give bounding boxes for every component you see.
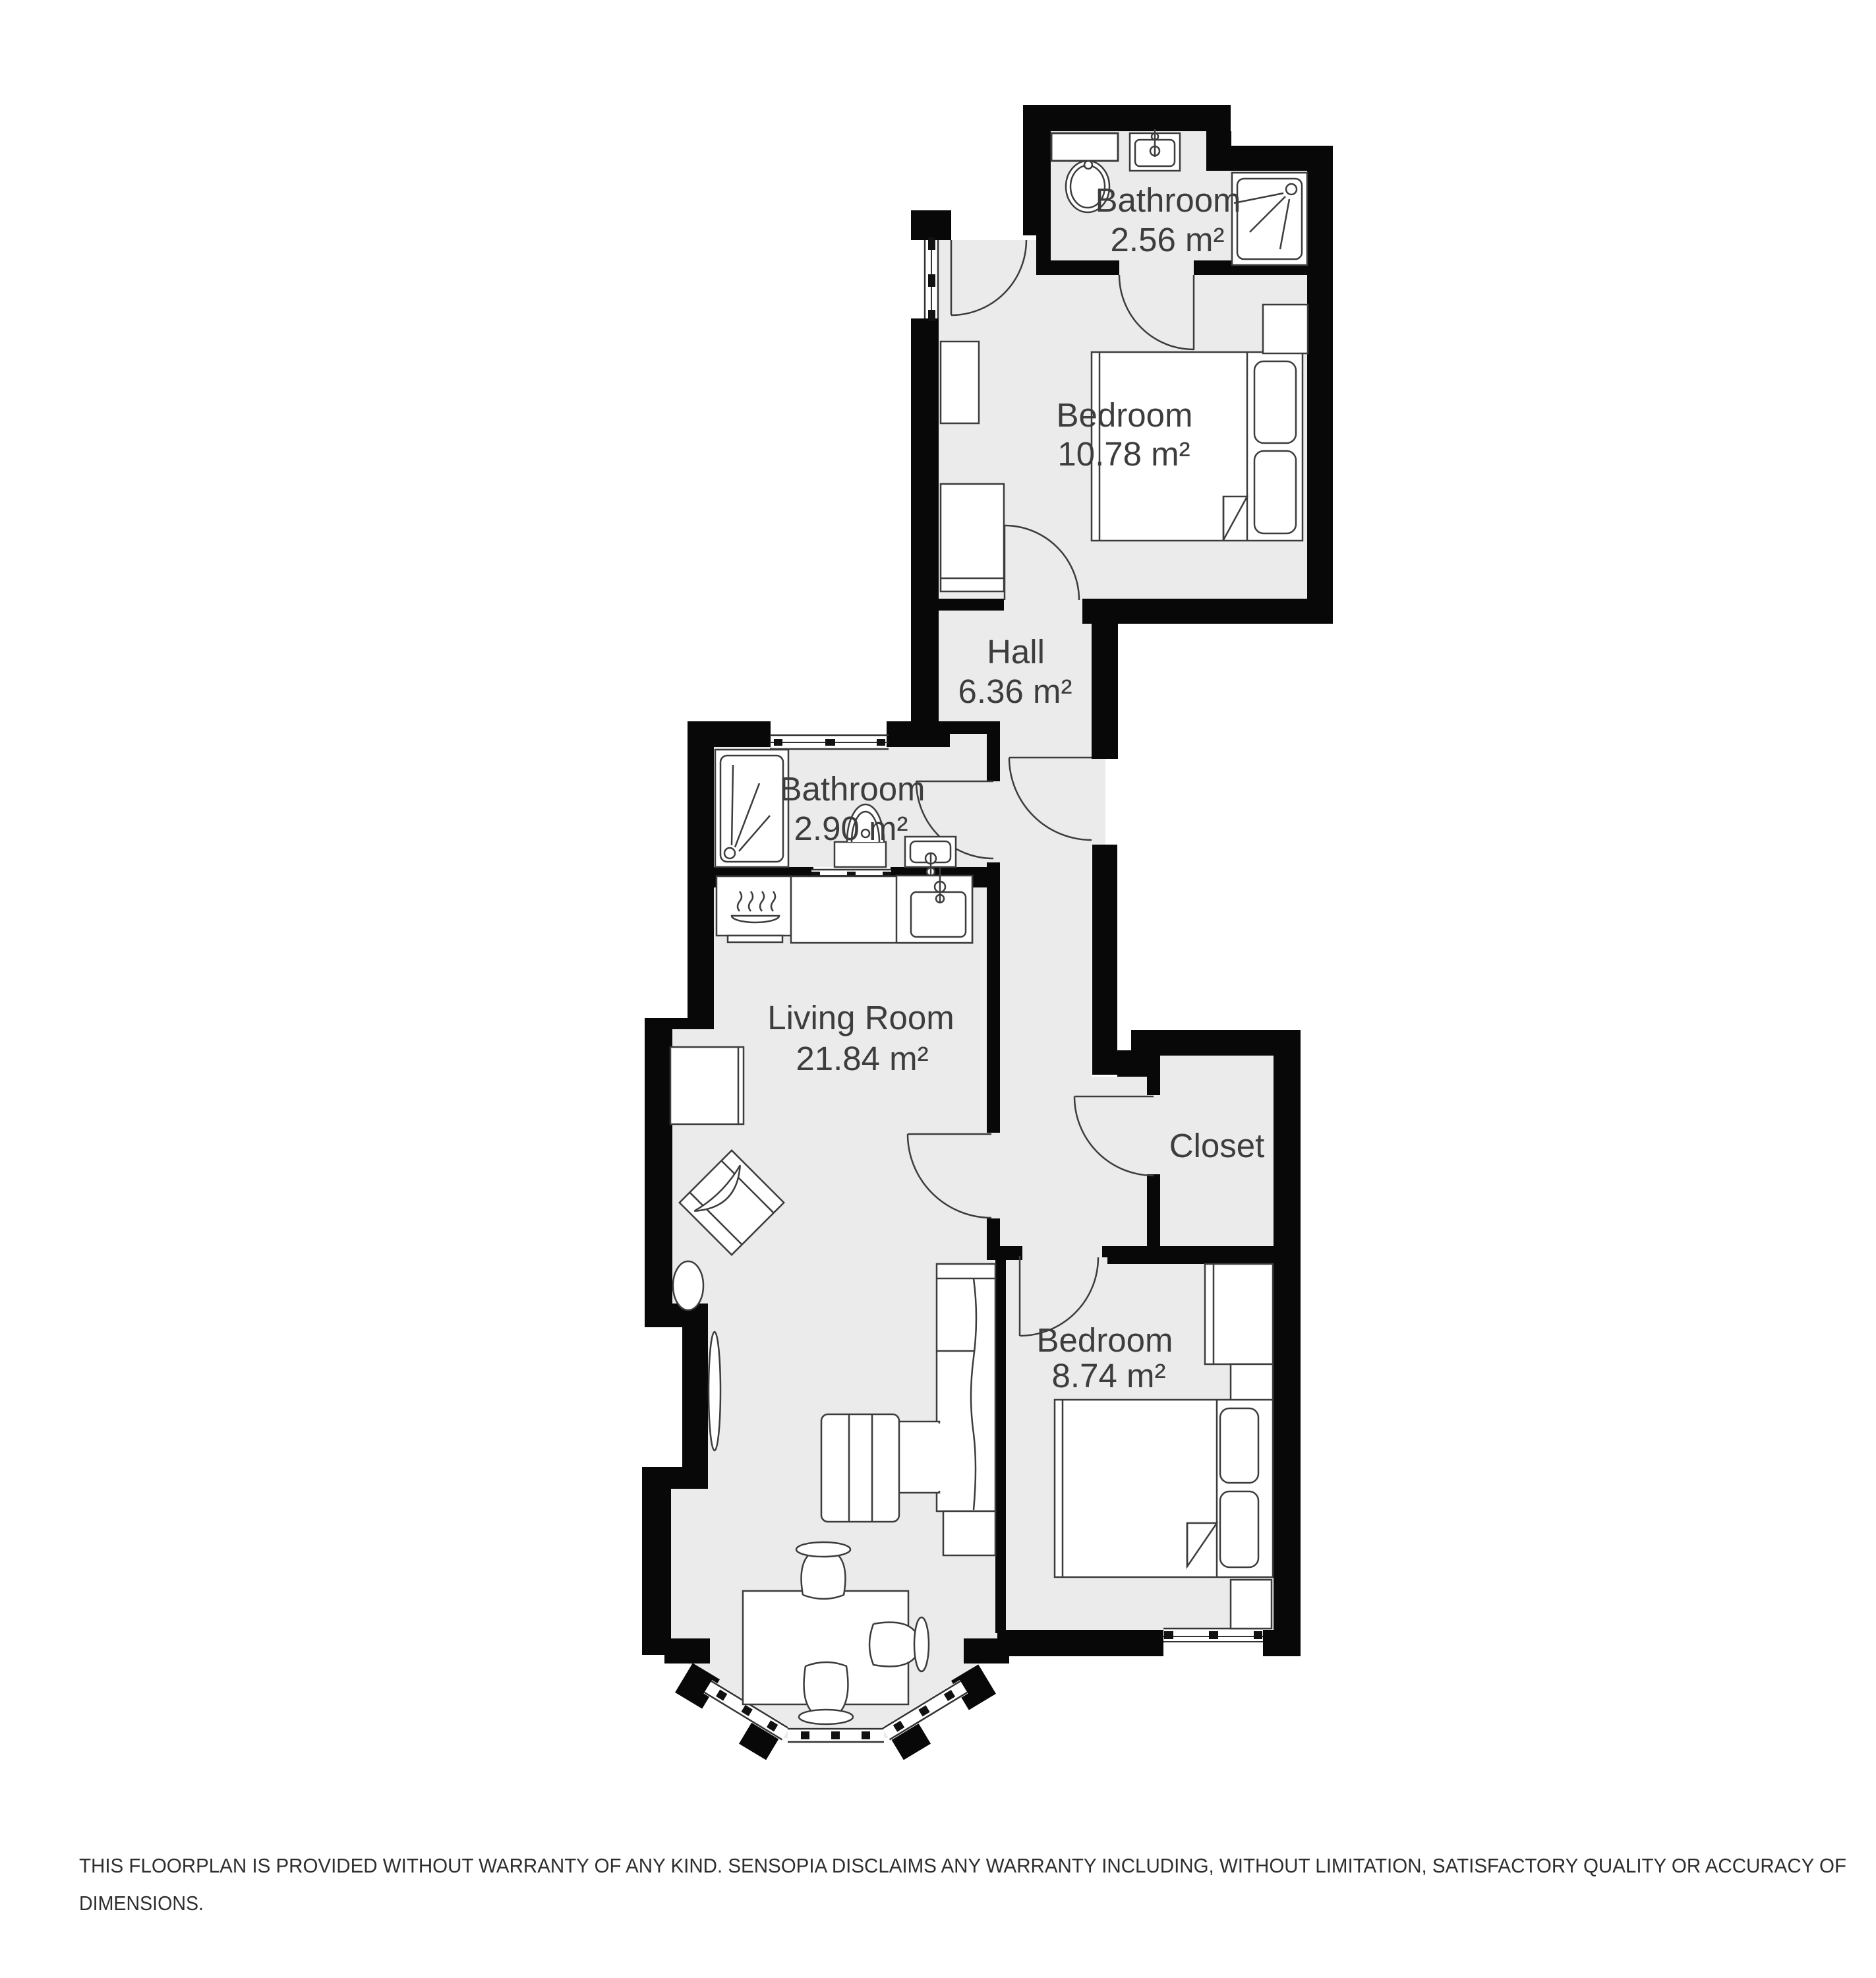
svg-text:Bedroom: Bedroom (1057, 396, 1193, 434)
svg-text:Bathroom: Bathroom (1095, 181, 1241, 219)
svg-text:Closet: Closet (1169, 1127, 1265, 1164)
svg-text:2.90 m²: 2.90 m² (794, 810, 908, 847)
svg-text:21.84 m²: 21.84 m² (796, 1040, 928, 1077)
svg-text:Bedroom: Bedroom (1037, 1321, 1173, 1359)
svg-text:2.56 m²: 2.56 m² (1111, 221, 1225, 258)
svg-text:THIS FLOORPLAN IS PROVIDED WIT: THIS FLOORPLAN IS PROVIDED WITHOUT WARRA… (79, 1854, 1846, 1877)
svg-text:Living Room: Living Room (767, 999, 954, 1036)
svg-text:Bathroom: Bathroom (779, 770, 925, 808)
svg-text:6.36 m²: 6.36 m² (958, 673, 1072, 710)
svg-text:10.78 m²: 10.78 m² (1057, 435, 1190, 473)
svg-text:Hall: Hall (987, 633, 1045, 671)
svg-text:8.74 m²: 8.74 m² (1052, 1357, 1166, 1394)
svg-text:DIMENSIONS.: DIMENSIONS. (79, 1892, 204, 1915)
